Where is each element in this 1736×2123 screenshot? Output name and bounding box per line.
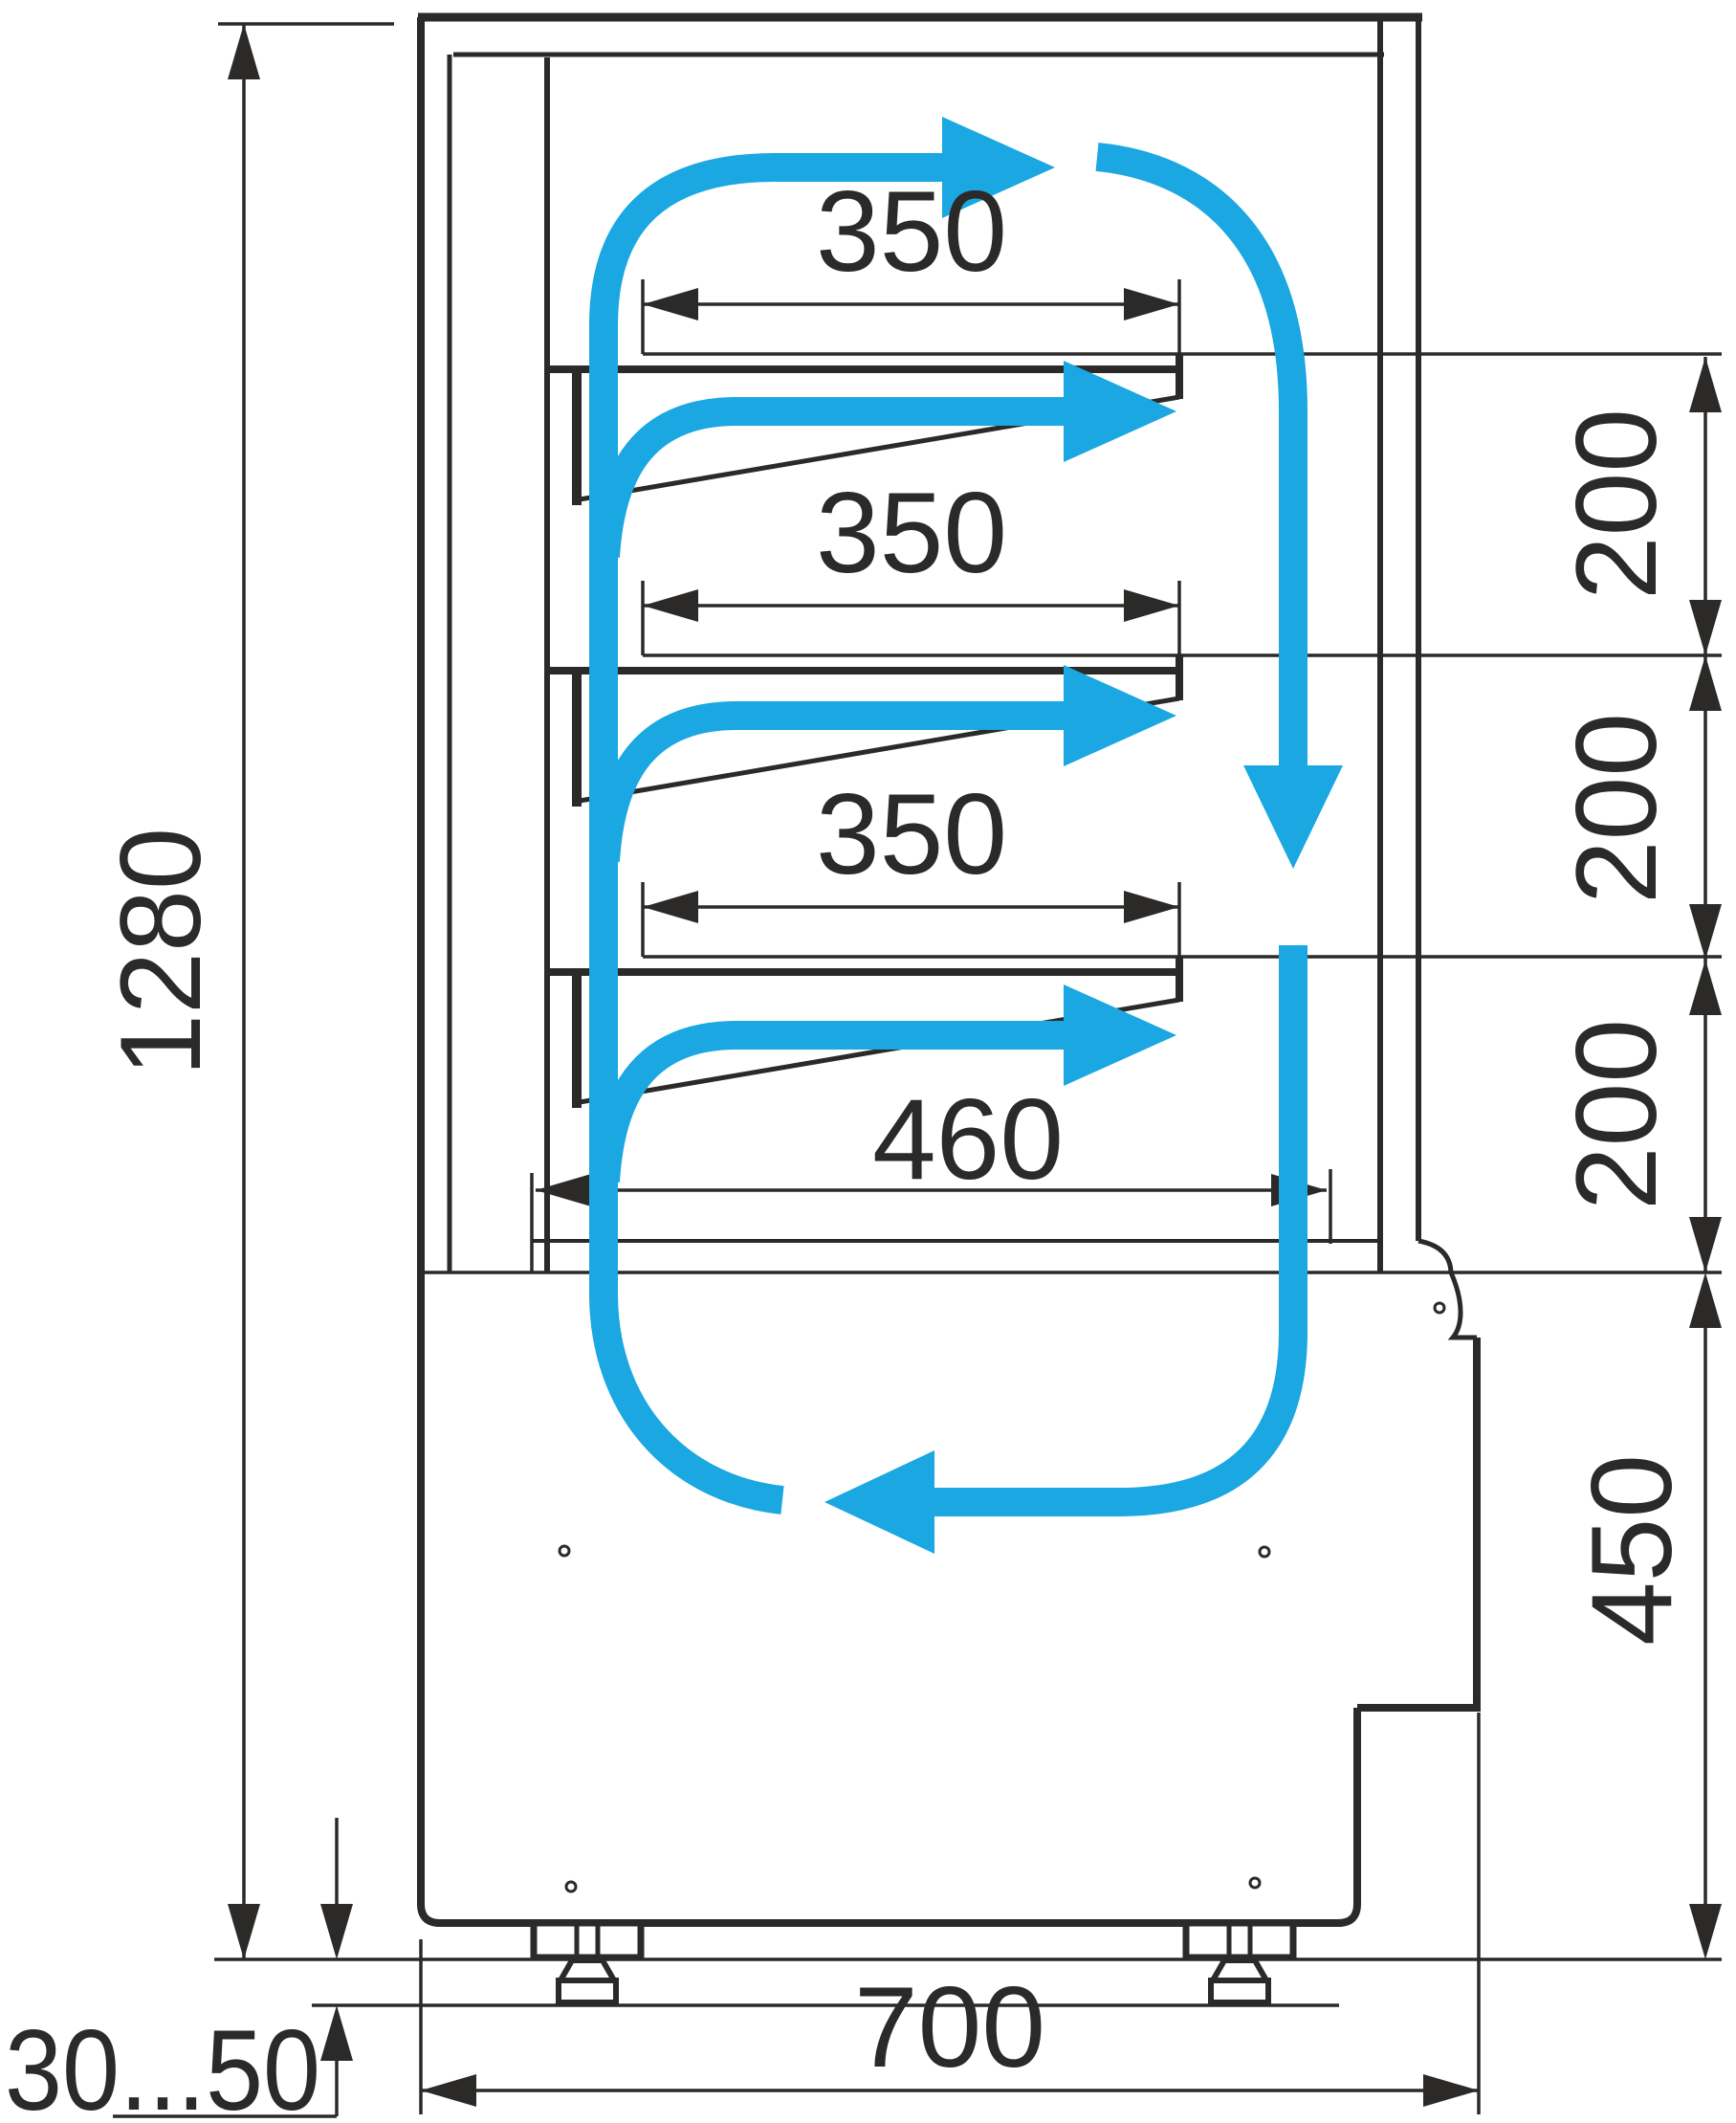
arrowhead-right [1124, 288, 1179, 321]
leg-mount-block [534, 1923, 641, 1957]
dimensions [113, 24, 1722, 2116]
display-case-diagram: 1280 350 350 350 200 200 200 460 450 700… [0, 0, 1736, 2123]
arrowhead-down [1689, 1904, 1722, 1959]
screw-hole [560, 1546, 569, 1556]
technical-drawing-page: 1280 350 350 350 200 200 200 460 450 700… [0, 0, 1736, 2123]
arrowhead-up [320, 2005, 353, 2061]
arrowhead-up [1689, 1272, 1722, 1328]
leg-mount-block [1186, 1923, 1293, 1957]
arrowhead-down [228, 1904, 260, 1959]
screw-hole [1250, 1878, 1260, 1888]
arrowhead-right [1423, 2074, 1479, 2107]
base-width-label: 700 [854, 1963, 1045, 2091]
sill-nose-curve [1418, 1241, 1477, 1338]
leg-foot-pad [559, 1980, 616, 2002]
arrowhead-left [536, 1174, 591, 1206]
adjustable-leg-left [534, 1923, 641, 2002]
arrowhead-down [1689, 1217, 1722, 1272]
airflow-arrowhead-left-bottom [824, 1450, 934, 1554]
arrowhead-up [1689, 960, 1722, 1015]
airflow-arrowhead-shelf2 [1064, 665, 1176, 766]
airflow-arrowhead-shelf1 [1064, 361, 1176, 462]
dim-shelf-gaps [1689, 357, 1722, 1272]
overall-height-label: 1280 [97, 828, 225, 1076]
arrowhead-up [1689, 655, 1722, 711]
shelf1-width-label: 350 [816, 167, 1007, 296]
arrowhead-down [320, 1904, 353, 1959]
screw-hole [566, 1882, 576, 1891]
airflow-riser-bottom-curve [604, 1294, 782, 1500]
arrowhead-left [643, 589, 698, 622]
leg-foot-cone [560, 1960, 614, 1980]
screw-hole [1435, 1303, 1444, 1313]
arrowhead-right [1124, 891, 1179, 923]
leg-height-range-label: 30...50 [5, 2006, 320, 2123]
dimension-labels: 1280 350 350 350 200 200 200 460 450 700… [5, 167, 1696, 2123]
gap2-label: 200 [1552, 713, 1681, 904]
airflow-arrowhead-down [1243, 765, 1343, 869]
machine-front-panel [1357, 1338, 1477, 1708]
leg-foot-pad [1211, 1980, 1268, 2002]
arrowhead-left [643, 891, 698, 923]
airflow-arrowhead-shelf3 [1064, 984, 1176, 1086]
arrowhead-left [643, 288, 698, 321]
arrowhead-down [1689, 600, 1722, 655]
dim-overall-height [218, 24, 394, 1959]
bottom-shelf-width-label: 460 [872, 1075, 1064, 1204]
screw-hole [1260, 1547, 1269, 1557]
shelf2-width-label: 350 [816, 469, 1007, 597]
arrowhead-down [1689, 904, 1722, 960]
arrowhead-right [1124, 589, 1179, 622]
leg-foot-cone [1213, 1960, 1266, 1980]
arrowhead-up [1689, 357, 1722, 412]
gap3-label: 200 [1552, 1019, 1681, 1210]
arrowhead-up [228, 24, 260, 79]
adjustable-leg-right [1186, 1923, 1293, 2002]
arrowhead-left [421, 2074, 476, 2107]
shelf3-width-label: 350 [816, 770, 1007, 898]
gap1-label: 200 [1552, 409, 1681, 600]
machine-height-label: 450 [1568, 1454, 1696, 1646]
